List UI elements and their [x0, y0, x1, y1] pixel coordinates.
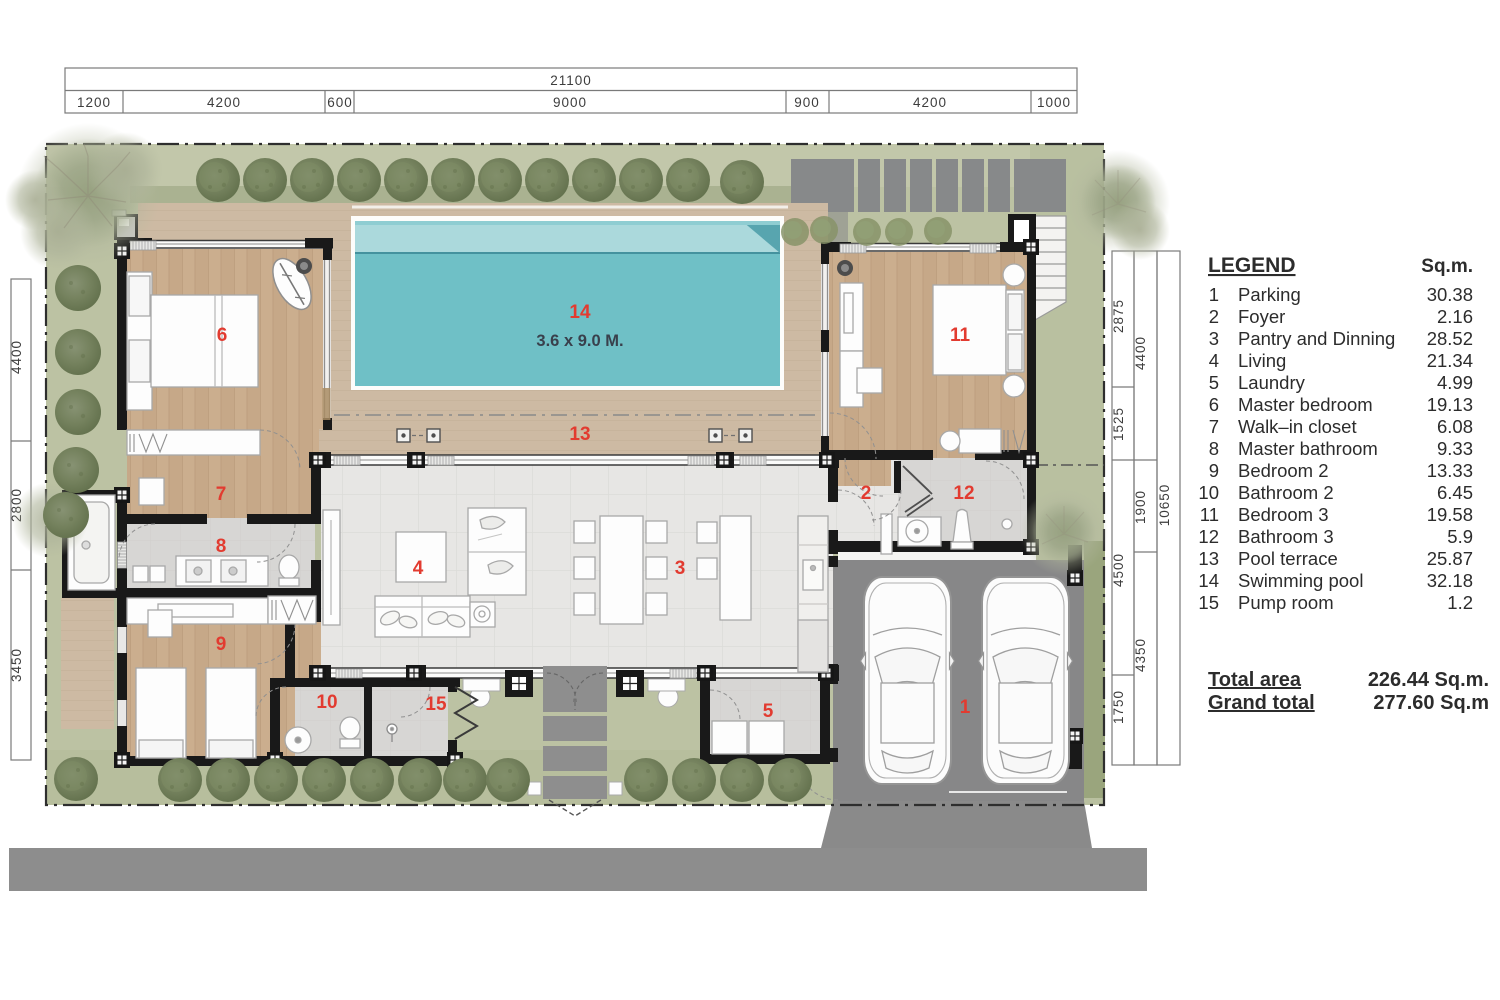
- svg-text:1: 1: [960, 697, 971, 718]
- svg-text:9: 9: [1209, 460, 1219, 481]
- svg-text:Pool terrace: Pool terrace: [1238, 548, 1338, 569]
- svg-text:Pump room: Pump room: [1238, 592, 1334, 613]
- svg-text:6.08: 6.08: [1437, 416, 1473, 437]
- svg-text:1200: 1200: [77, 95, 111, 110]
- svg-text:Walk–in closet: Walk–in closet: [1238, 416, 1357, 437]
- svg-text:4: 4: [1209, 350, 1219, 371]
- svg-text:Master bathroom: Master bathroom: [1238, 438, 1378, 459]
- svg-text:3450: 3450: [9, 648, 24, 682]
- svg-text:Living: Living: [1238, 350, 1286, 371]
- svg-text:10: 10: [1198, 482, 1219, 503]
- svg-text:900: 900: [794, 95, 820, 110]
- svg-text:4.99: 4.99: [1437, 372, 1473, 393]
- svg-text:Bedroom 2: Bedroom 2: [1238, 460, 1329, 481]
- svg-text:8: 8: [1209, 438, 1219, 459]
- svg-text:3: 3: [1209, 328, 1219, 349]
- svg-text:1000: 1000: [1037, 95, 1071, 110]
- svg-text:5: 5: [763, 701, 774, 722]
- svg-text:Sq.m.: Sq.m.: [1421, 256, 1473, 277]
- svg-text:2: 2: [1209, 306, 1219, 327]
- svg-text:3.6 x 9.0 M.: 3.6 x 9.0 M.: [536, 332, 623, 350]
- svg-text:1: 1: [1209, 284, 1219, 305]
- svg-text:4350: 4350: [1133, 638, 1148, 672]
- svg-text:2875: 2875: [1111, 299, 1126, 333]
- svg-text:13: 13: [569, 424, 590, 445]
- svg-text:226.44 Sq.m.: 226.44 Sq.m.: [1368, 669, 1489, 691]
- svg-text:11: 11: [950, 325, 971, 346]
- svg-text:6: 6: [1209, 394, 1219, 415]
- svg-text:9000: 9000: [553, 95, 587, 110]
- svg-text:3: 3: [675, 558, 686, 579]
- svg-text:5.9: 5.9: [1447, 526, 1473, 547]
- svg-text:5: 5: [1209, 372, 1219, 393]
- svg-text:21100: 21100: [550, 73, 592, 88]
- svg-text:Bedroom 3: Bedroom 3: [1238, 504, 1329, 525]
- svg-text:19.58: 19.58: [1427, 504, 1473, 525]
- svg-text:Parking: Parking: [1238, 284, 1301, 305]
- svg-text:25.87: 25.87: [1427, 548, 1473, 569]
- svg-text:9.33: 9.33: [1437, 438, 1473, 459]
- svg-text:15: 15: [1198, 592, 1219, 613]
- svg-text:4400: 4400: [1133, 336, 1148, 370]
- svg-text:Master bedroom: Master bedroom: [1238, 394, 1373, 415]
- svg-text:4200: 4200: [913, 95, 947, 110]
- svg-text:4500: 4500: [1111, 553, 1126, 587]
- svg-text:2: 2: [861, 483, 872, 504]
- svg-text:32.18: 32.18: [1427, 570, 1473, 591]
- svg-text:Pantry and Dinning: Pantry and Dinning: [1238, 328, 1395, 349]
- svg-text:7: 7: [1209, 416, 1219, 437]
- svg-text:21.34: 21.34: [1427, 350, 1473, 371]
- svg-text:Bathroom 2: Bathroom 2: [1238, 482, 1334, 503]
- svg-text:1.2: 1.2: [1447, 592, 1473, 613]
- svg-text:14: 14: [1198, 570, 1219, 591]
- svg-text:15: 15: [425, 694, 447, 715]
- svg-text:11: 11: [1200, 504, 1219, 525]
- svg-text:277.60 Sq.m: 277.60 Sq.m: [1373, 692, 1489, 714]
- svg-text:1525: 1525: [1111, 407, 1126, 441]
- svg-text:Swimming pool: Swimming pool: [1238, 570, 1363, 591]
- svg-text:12: 12: [953, 483, 974, 504]
- svg-text:13: 13: [1198, 548, 1219, 569]
- svg-text:2.16: 2.16: [1437, 306, 1473, 327]
- svg-text:Foyer: Foyer: [1238, 306, 1285, 327]
- svg-text:6.45: 6.45: [1437, 482, 1473, 503]
- svg-text:7: 7: [216, 484, 227, 505]
- svg-text:1900: 1900: [1133, 490, 1148, 524]
- svg-text:30.38: 30.38: [1427, 284, 1473, 305]
- svg-text:6: 6: [217, 325, 228, 346]
- svg-text:9: 9: [216, 634, 227, 655]
- svg-text:LEGEND: LEGEND: [1208, 254, 1296, 277]
- svg-text:8: 8: [216, 536, 227, 557]
- svg-text:Total area: Total area: [1208, 669, 1302, 691]
- svg-text:4200: 4200: [207, 95, 241, 110]
- svg-text:600: 600: [327, 95, 353, 110]
- svg-text:Bathroom 3: Bathroom 3: [1238, 526, 1334, 547]
- svg-text:28.52: 28.52: [1427, 328, 1473, 349]
- svg-text:13.33: 13.33: [1427, 460, 1473, 481]
- svg-text:14: 14: [569, 302, 591, 323]
- svg-text:4400: 4400: [9, 340, 24, 374]
- svg-text:10650: 10650: [1157, 484, 1172, 527]
- svg-text:1750: 1750: [1111, 690, 1126, 724]
- svg-text:19.13: 19.13: [1427, 394, 1473, 415]
- svg-text:4: 4: [413, 558, 424, 579]
- svg-text:10: 10: [316, 692, 337, 713]
- svg-text:Laundry: Laundry: [1238, 372, 1306, 393]
- svg-text:Grand total: Grand total: [1208, 692, 1315, 714]
- svg-text:12: 12: [1198, 526, 1219, 547]
